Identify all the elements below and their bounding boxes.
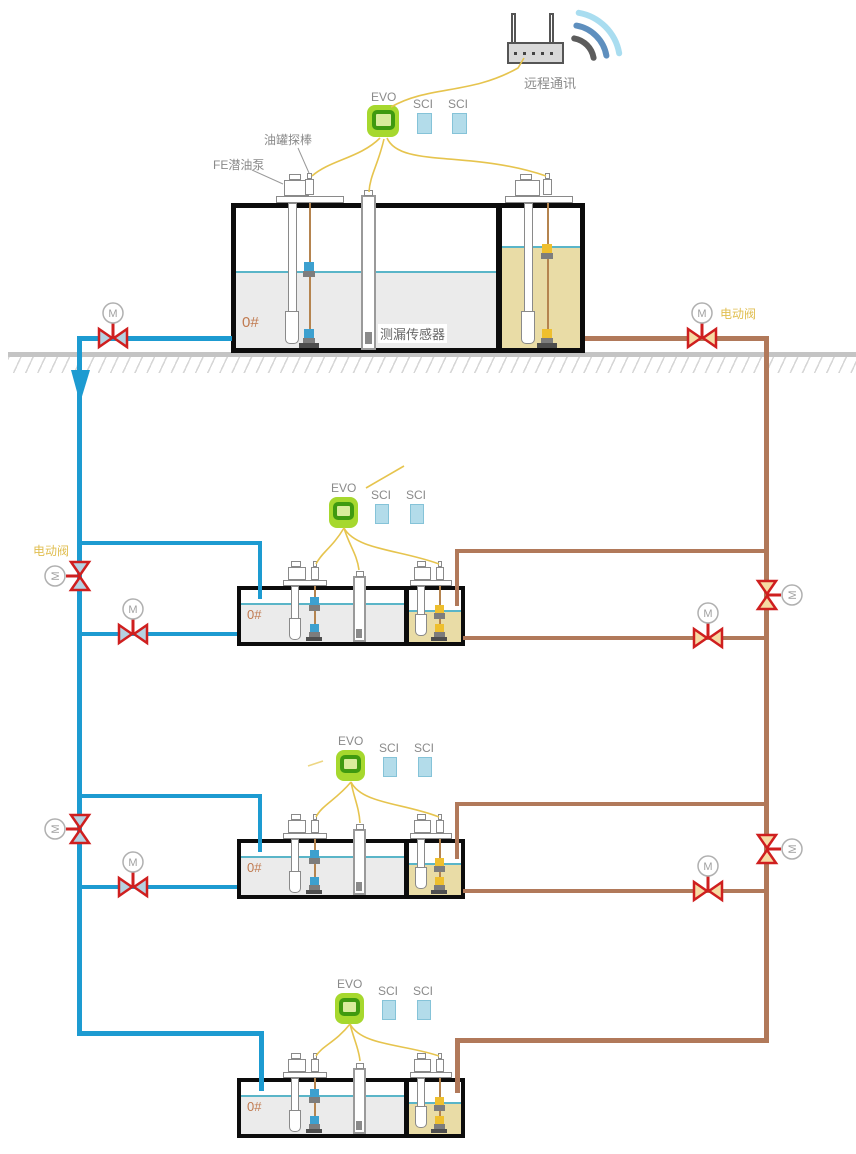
submersible-pump — [289, 618, 301, 640]
level-float — [304, 262, 314, 271]
supply-branch — [79, 632, 237, 636]
evo-screen — [340, 755, 361, 773]
leak-sensor-label: 测漏传感器 — [378, 324, 447, 343]
valve-m-symbol: M — [787, 590, 799, 599]
leak-sensor — [356, 629, 362, 638]
return-drop — [455, 802, 459, 859]
supply-branch — [77, 794, 262, 798]
valve-m-symbol: M — [50, 571, 62, 580]
probe-base — [306, 890, 322, 894]
level-float — [310, 1089, 319, 1097]
level-float — [435, 605, 444, 613]
manifold-plate — [410, 1072, 452, 1078]
motor-valve: M — [119, 852, 147, 896]
manifold-plate — [410, 833, 452, 839]
valve-m-symbol: M — [697, 308, 706, 320]
float-weight — [309, 858, 320, 864]
probe-base — [431, 890, 447, 894]
probe-head-cap — [313, 814, 317, 820]
router-led-dots — [514, 52, 556, 55]
motor-valve: M — [45, 815, 89, 843]
return-branch — [463, 636, 766, 640]
pump-motor-cap — [520, 174, 532, 180]
bottom-float — [435, 877, 444, 885]
probe-head-cap — [307, 173, 312, 179]
probe-leader-line — [298, 148, 309, 173]
pump-motor-cap — [291, 1053, 301, 1059]
evo-console — [329, 497, 358, 528]
submersible-pump — [415, 614, 427, 636]
motor-valve: M — [45, 562, 89, 590]
float-weight — [303, 271, 315, 277]
evo-console — [336, 750, 365, 781]
sci-label: SCI — [379, 741, 399, 755]
remote-comm-label: 远程通讯 — [524, 73, 576, 92]
leak-tube-cap — [356, 571, 364, 577]
sci-module — [417, 113, 432, 134]
bottom-float — [310, 877, 319, 885]
submersible-pump — [289, 871, 301, 893]
manifold-plate — [283, 833, 327, 839]
probe-base — [306, 637, 322, 641]
pump-column — [417, 586, 425, 616]
float-weight — [309, 605, 320, 611]
return-branch — [455, 802, 768, 806]
pump-column — [417, 1078, 425, 1108]
motor-valve-label: 电动阀 — [720, 305, 756, 322]
sci-module — [452, 113, 467, 134]
tank-probe-label: 油罐探棒 — [264, 131, 312, 148]
leak-tube-cap — [364, 190, 373, 196]
evo-label: EVO — [337, 977, 362, 991]
leak-sensor — [356, 882, 362, 891]
evo-label: EVO — [338, 734, 363, 748]
bottom-float — [310, 624, 319, 632]
leak-sensor-tube — [361, 195, 376, 350]
router-antenna-right — [549, 13, 554, 44]
bottom-float — [304, 329, 314, 338]
pump-column — [524, 203, 533, 313]
manifold-plate — [283, 1072, 327, 1078]
return-drop — [455, 549, 459, 606]
supply-branch — [77, 541, 262, 545]
sci-label: SCI — [378, 984, 398, 998]
return-pipe — [585, 336, 768, 341]
probe-head — [436, 820, 444, 833]
probe-head — [436, 1059, 444, 1072]
sci-label: SCI — [448, 97, 468, 111]
sci-label: SCI — [371, 488, 391, 502]
pipeline-monitoring-diagram: 远程通讯 EVO SCI SCI 油罐探棒 FE潜油泵 — [0, 0, 856, 1154]
fuel-grade-label: 0# — [247, 860, 261, 875]
manifold-plate — [505, 196, 573, 203]
pump-motor — [414, 1059, 431, 1072]
probe-head — [543, 179, 552, 195]
sci-label: SCI — [406, 488, 426, 502]
motor-valve: M — [119, 599, 147, 643]
level-float — [310, 850, 319, 858]
float-weight — [541, 253, 553, 259]
oil-liquid — [502, 246, 580, 348]
valve-m-symbol: M — [108, 308, 117, 320]
ground-hatching — [8, 357, 856, 373]
probe-head — [436, 567, 444, 580]
evo-console — [367, 105, 399, 137]
level-float — [542, 244, 552, 253]
float-weight — [434, 866, 445, 872]
return-branch — [455, 549, 768, 553]
pump-motor — [515, 180, 540, 196]
supply-branch — [79, 885, 237, 889]
valve-m-symbol: M — [787, 844, 799, 853]
evo-console — [335, 993, 364, 1024]
valve-m-symbol: M — [128, 604, 137, 616]
motor-valve: M — [694, 603, 722, 647]
sci-module — [383, 757, 397, 777]
sci-module — [382, 1000, 396, 1020]
sci-label: SCI — [413, 97, 433, 111]
probe-head — [311, 1059, 319, 1072]
pump-motor-cap — [417, 561, 426, 567]
sci-module — [375, 504, 389, 524]
float-weight — [434, 613, 445, 619]
pump-column — [417, 839, 425, 869]
tank-divider-wall — [404, 586, 409, 646]
probe-base — [299, 343, 319, 348]
probe-head-cap — [545, 173, 550, 179]
manifold-plate — [410, 580, 452, 586]
level-float — [435, 1097, 444, 1105]
return-main-vertical — [764, 336, 769, 1042]
supply-branch — [77, 1031, 263, 1036]
router-antenna-left — [511, 13, 516, 44]
pump-column — [291, 839, 299, 873]
float-weight — [434, 1105, 445, 1111]
probe-head — [311, 567, 319, 580]
pump-column — [288, 203, 297, 313]
return-branch — [455, 1038, 769, 1043]
sci-label: SCI — [414, 741, 434, 755]
pump-motor-cap — [291, 814, 301, 820]
submersible-pump — [415, 1106, 427, 1128]
leak-tube-cap — [356, 824, 364, 830]
wifi-signal-icon — [574, 13, 619, 58]
probe-head-cap — [438, 1053, 442, 1059]
bottom-float — [435, 624, 444, 632]
level-float — [435, 858, 444, 866]
pump-motor — [414, 567, 431, 580]
leak-sensor — [356, 1121, 362, 1130]
fuel-grade-label: 0# — [247, 1099, 261, 1114]
pump-label: FE潜油泵 — [213, 156, 264, 173]
evo-label: EVO — [331, 481, 356, 495]
supply-drop — [258, 794, 262, 852]
sci-module — [418, 757, 432, 777]
probe-base — [306, 1129, 322, 1133]
fuel-grade-label: 0# — [247, 607, 261, 622]
probe-wire — [547, 203, 549, 345]
supply-pipe — [80, 336, 232, 341]
probe-head-cap — [313, 1053, 317, 1059]
supply-drop — [259, 1031, 264, 1091]
probe-base — [431, 637, 447, 641]
sci-label: SCI — [413, 984, 433, 998]
valve-m-symbol: M — [703, 608, 712, 620]
evo-screen — [339, 998, 360, 1016]
motor-valve-label: 电动阀 — [33, 542, 69, 559]
probe-head — [311, 820, 319, 833]
pump-column — [291, 1078, 299, 1112]
probe-head-cap — [313, 561, 317, 567]
probe-head-cap — [438, 561, 442, 567]
tank-divider-wall — [404, 1078, 409, 1138]
pump-motor — [414, 820, 431, 833]
valve-m-symbol: M — [50, 824, 62, 833]
pump-motor-cap — [289, 174, 301, 180]
evo-label: EVO — [371, 90, 396, 104]
sci-module — [417, 1000, 431, 1020]
leak-tube-cap — [356, 1063, 364, 1069]
float-weight — [309, 1097, 320, 1103]
probe-head — [305, 179, 314, 195]
pump-motor — [288, 820, 306, 833]
evo-screen — [333, 502, 354, 520]
manifold-plate — [276, 196, 344, 203]
probe-head-cap — [438, 814, 442, 820]
manifold-plate — [283, 580, 327, 586]
bottom-float — [310, 1116, 319, 1124]
fuel-grade-label: 0# — [242, 314, 259, 331]
probe-base — [537, 343, 557, 348]
diesel-liquid — [241, 603, 404, 642]
diesel-liquid — [241, 856, 404, 895]
pump-column — [291, 586, 299, 620]
supply-main-vertical — [77, 336, 82, 1035]
sci-module — [410, 504, 424, 524]
submersible-pump — [521, 311, 535, 344]
pump-motor — [288, 1059, 306, 1072]
return-drop — [455, 1038, 460, 1093]
pump-motor-cap — [417, 814, 426, 820]
tank-divider-wall — [404, 839, 409, 899]
motor-valve: M — [694, 856, 722, 900]
probe-base — [431, 1129, 447, 1133]
submersible-pump — [285, 311, 299, 344]
return-branch — [463, 889, 766, 893]
submersible-pump — [289, 1110, 301, 1132]
leak-sensor — [365, 332, 372, 344]
diesel-liquid — [241, 1095, 404, 1134]
tank-divider-wall — [496, 203, 502, 353]
pump-motor — [288, 567, 306, 580]
bottom-float — [542, 329, 552, 338]
evo-screen — [372, 110, 395, 130]
valve-m-symbol: M — [703, 861, 712, 873]
pump-motor-cap — [417, 1053, 426, 1059]
valve-m-symbol: M — [128, 857, 137, 869]
bottom-float — [435, 1116, 444, 1124]
level-float — [310, 597, 319, 605]
supply-drop — [258, 541, 262, 599]
submersible-pump — [415, 867, 427, 889]
pump-motor-cap — [291, 561, 301, 567]
